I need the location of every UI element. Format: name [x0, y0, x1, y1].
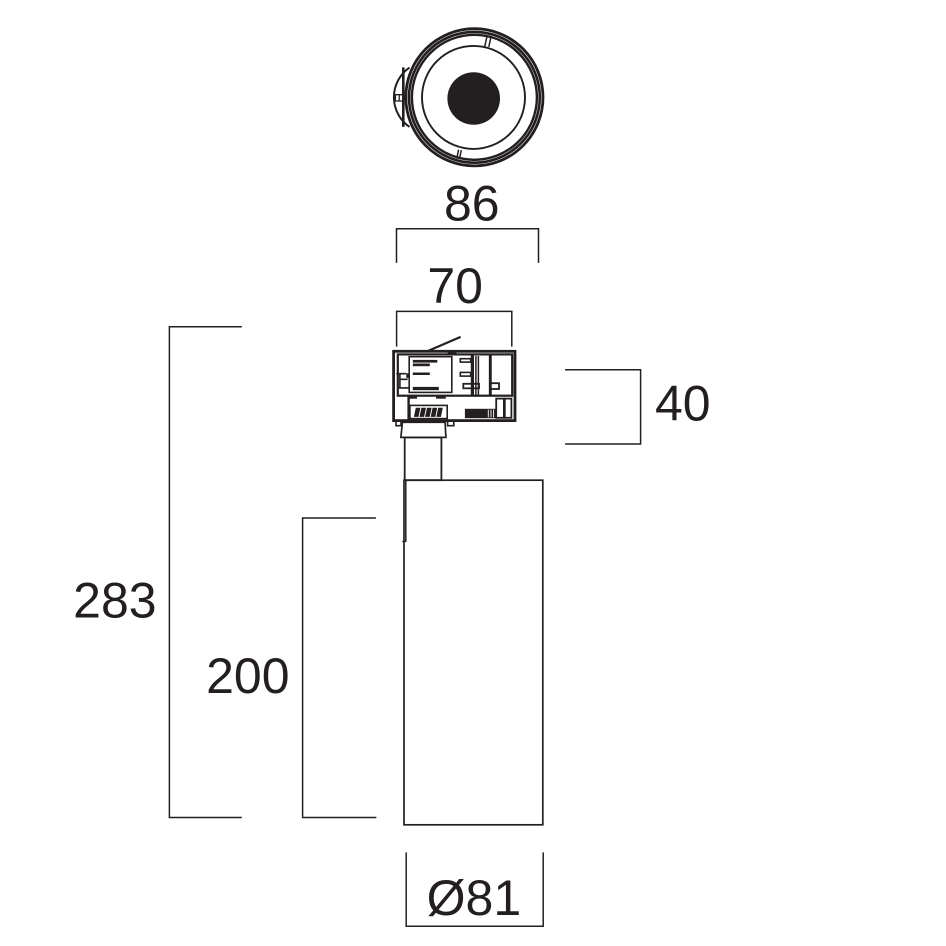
svg-text:283: 283 [73, 573, 156, 629]
svg-text:Ø81: Ø81 [427, 870, 522, 926]
svg-text:86: 86 [444, 176, 500, 232]
svg-text:70: 70 [427, 258, 483, 314]
svg-text:200: 200 [206, 648, 289, 704]
svg-text:40: 40 [655, 376, 711, 432]
